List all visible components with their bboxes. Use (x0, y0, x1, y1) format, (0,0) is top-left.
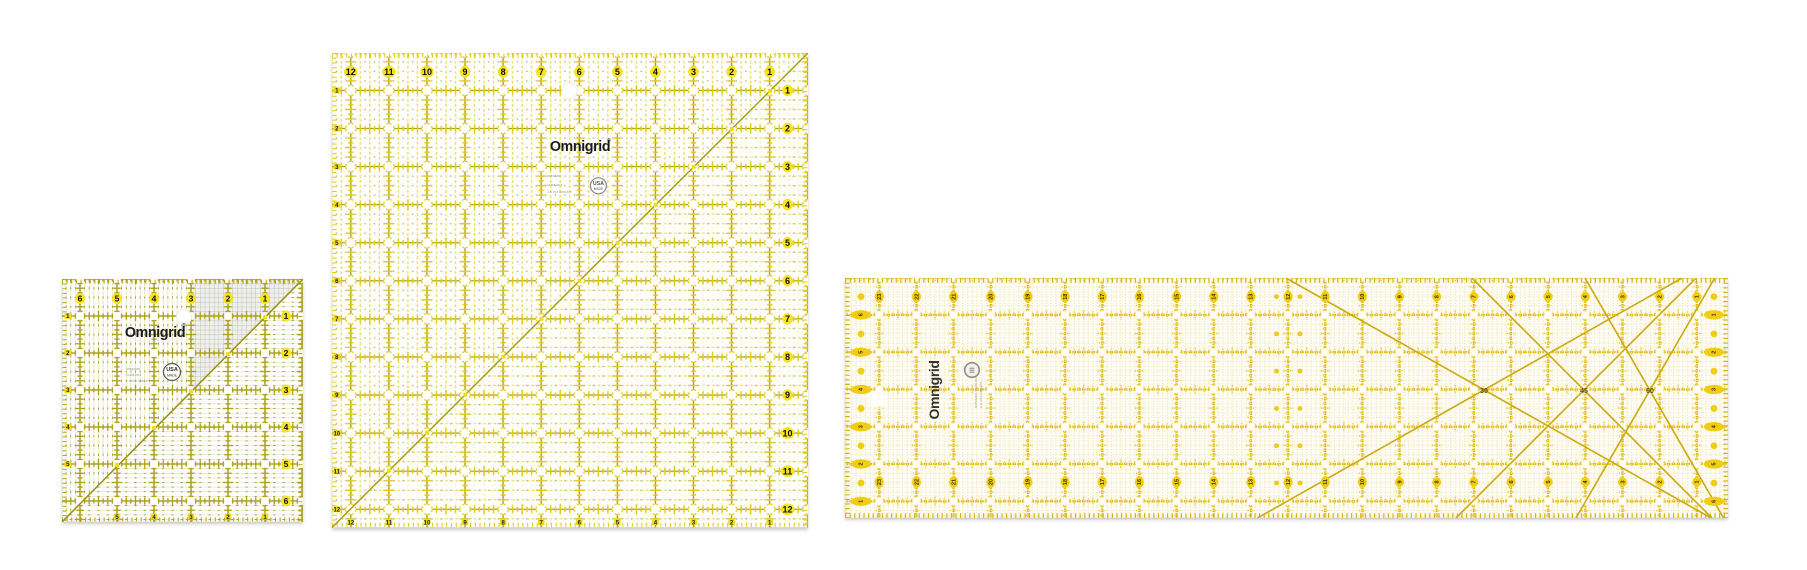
svg-text:3: 3 (859, 425, 865, 428)
svg-text:Omnigrid: Omnigrid (549, 139, 609, 155)
svg-text:MADE: MADE (167, 374, 178, 378)
svg-text:15: 15 (1174, 294, 1180, 300)
svg-text:6: 6 (78, 293, 83, 303)
svg-text:3: 3 (1620, 295, 1626, 298)
svg-text:USA: USA (166, 367, 178, 373)
svg-text:7: 7 (1472, 480, 1478, 483)
svg-text:14: 14 (1212, 293, 1218, 300)
svg-text:OMNIGRID ©1986,2016: OMNIGRID ©1986,2016 (974, 375, 978, 408)
svg-text:10: 10 (1360, 479, 1366, 485)
svg-text:3: 3 (1620, 480, 1626, 483)
svg-text:5: 5 (859, 351, 865, 354)
svg-text:©1986,2016: ©1986,2016 (547, 183, 563, 187)
svg-text:22: 22 (914, 294, 920, 300)
svg-text:2: 2 (226, 293, 231, 303)
svg-text:7: 7 (784, 314, 789, 324)
svg-text:18: 18 (1063, 294, 1069, 300)
svg-text:6: 6 (1712, 500, 1718, 503)
svg-text:3: 3 (691, 67, 696, 77)
svg-text:10: 10 (782, 428, 792, 438)
svg-text:30: 30 (1480, 388, 1488, 395)
svg-text:3: 3 (1712, 388, 1718, 391)
svg-text:12: 12 (1286, 294, 1292, 300)
svg-text:10: 10 (421, 67, 431, 77)
svg-text:5: 5 (1546, 295, 1552, 298)
svg-text:5: 5 (784, 238, 789, 248)
svg-text:5: 5 (1712, 462, 1718, 465)
svg-text:6: 6 (284, 496, 289, 506)
svg-text:OMNIGRID: OMNIGRID (547, 174, 561, 178)
svg-text:11: 11 (384, 67, 394, 77)
svg-text:©1986,2016: ©1986,2016 (126, 373, 142, 377)
svg-text:11: 11 (782, 466, 792, 476)
svg-text:2: 2 (729, 67, 734, 77)
svg-text:20: 20 (989, 479, 995, 485)
svg-text:OMNIGRID: OMNIGRID (126, 367, 140, 371)
svg-text:®: ® (607, 137, 611, 144)
svg-text:4: 4 (152, 293, 157, 303)
svg-text:9: 9 (1397, 480, 1403, 483)
svg-text:2: 2 (784, 124, 789, 134)
svg-text:2: 2 (859, 462, 865, 465)
svg-text:18: 18 (1063, 479, 1069, 485)
svg-text:5: 5 (1546, 480, 1552, 483)
svg-text:23: 23 (877, 479, 883, 485)
svg-text:4: 4 (652, 67, 657, 77)
svg-text:3: 3 (189, 293, 194, 303)
svg-text:23: 23 (877, 294, 883, 300)
svg-text:2: 2 (1657, 295, 1663, 298)
svg-text:45: 45 (1580, 388, 1588, 395)
svg-text:5: 5 (284, 459, 289, 469)
svg-text:8: 8 (1435, 480, 1441, 483)
svg-text:1: 1 (1695, 295, 1701, 298)
svg-text:11: 11 (1323, 479, 1329, 485)
svg-text:U.S. PAT 4,653,877: U.S. PAT 4,653,877 (547, 190, 572, 194)
svg-text:1: 1 (859, 500, 865, 503)
svg-text:16: 16 (1137, 294, 1143, 300)
svg-text:7: 7 (538, 67, 543, 77)
svg-text:11: 11 (333, 469, 340, 475)
svg-text:1: 1 (1695, 480, 1701, 483)
svg-text:5: 5 (614, 67, 619, 77)
svg-text:19: 19 (1026, 479, 1032, 485)
svg-text:9: 9 (462, 67, 467, 77)
svg-text:Omnigrid: Omnigrid (926, 360, 942, 419)
svg-text:12: 12 (1286, 479, 1292, 485)
svg-text:U.S. PAT 4,653,877: U.S. PAT 4,653,877 (126, 379, 151, 383)
svg-text:13: 13 (1249, 294, 1255, 300)
svg-text:2: 2 (1712, 351, 1718, 354)
svg-text:9: 9 (1397, 295, 1403, 298)
svg-text:10: 10 (333, 431, 340, 437)
svg-text:9: 9 (784, 390, 789, 400)
svg-text:19: 19 (1026, 294, 1032, 300)
svg-text:10: 10 (423, 520, 430, 526)
svg-text:U.S. PAT 4,653,877: U.S. PAT 4,653,877 (979, 381, 983, 408)
svg-text:14: 14 (1212, 478, 1218, 485)
svg-text:13: 13 (1249, 479, 1255, 485)
svg-text:7: 7 (1472, 295, 1478, 298)
svg-text:11: 11 (385, 520, 392, 526)
svg-text:16: 16 (1137, 479, 1143, 485)
svg-text:6: 6 (859, 313, 865, 316)
svg-text:8: 8 (500, 67, 505, 77)
svg-text:17: 17 (1100, 479, 1106, 485)
svg-text:5: 5 (115, 293, 120, 303)
svg-text:USA: USA (592, 181, 603, 187)
svg-text:4: 4 (284, 422, 289, 432)
svg-text:3: 3 (284, 385, 289, 395)
svg-text:2: 2 (1657, 480, 1663, 483)
svg-text:6: 6 (576, 67, 581, 77)
svg-text:2: 2 (284, 348, 289, 358)
svg-text:12: 12 (782, 504, 792, 514)
svg-text:1: 1 (767, 67, 772, 77)
svg-text:20: 20 (989, 294, 995, 300)
svg-text:22: 22 (914, 479, 920, 485)
svg-text:3: 3 (784, 162, 789, 172)
svg-text:11: 11 (1323, 294, 1329, 300)
svg-text:Omnigrid: Omnigrid (125, 325, 185, 341)
svg-text:10: 10 (1360, 294, 1366, 300)
svg-text:☰: ☰ (969, 368, 974, 375)
svg-text:12: 12 (345, 67, 355, 77)
svg-text:6: 6 (1509, 295, 1515, 298)
svg-text:6: 6 (1509, 480, 1515, 483)
svg-text:1: 1 (284, 311, 289, 321)
svg-text:1: 1 (1712, 313, 1718, 316)
svg-text:1: 1 (784, 86, 789, 96)
svg-text:12: 12 (347, 520, 354, 526)
svg-text:17: 17 (1100, 294, 1106, 300)
svg-text:8: 8 (1435, 295, 1441, 298)
svg-text:MADE: MADE (593, 187, 602, 191)
svg-text:12: 12 (333, 507, 340, 513)
svg-text:15: 15 (1174, 479, 1180, 485)
svg-text:60: 60 (1646, 388, 1654, 395)
svg-text:8: 8 (784, 352, 789, 362)
svg-text:21: 21 (951, 294, 957, 300)
svg-text:6: 6 (784, 276, 789, 286)
svg-text:4: 4 (784, 200, 789, 210)
svg-text:21: 21 (951, 479, 957, 485)
svg-text:1: 1 (263, 293, 268, 303)
svg-text:®: ® (182, 322, 186, 329)
